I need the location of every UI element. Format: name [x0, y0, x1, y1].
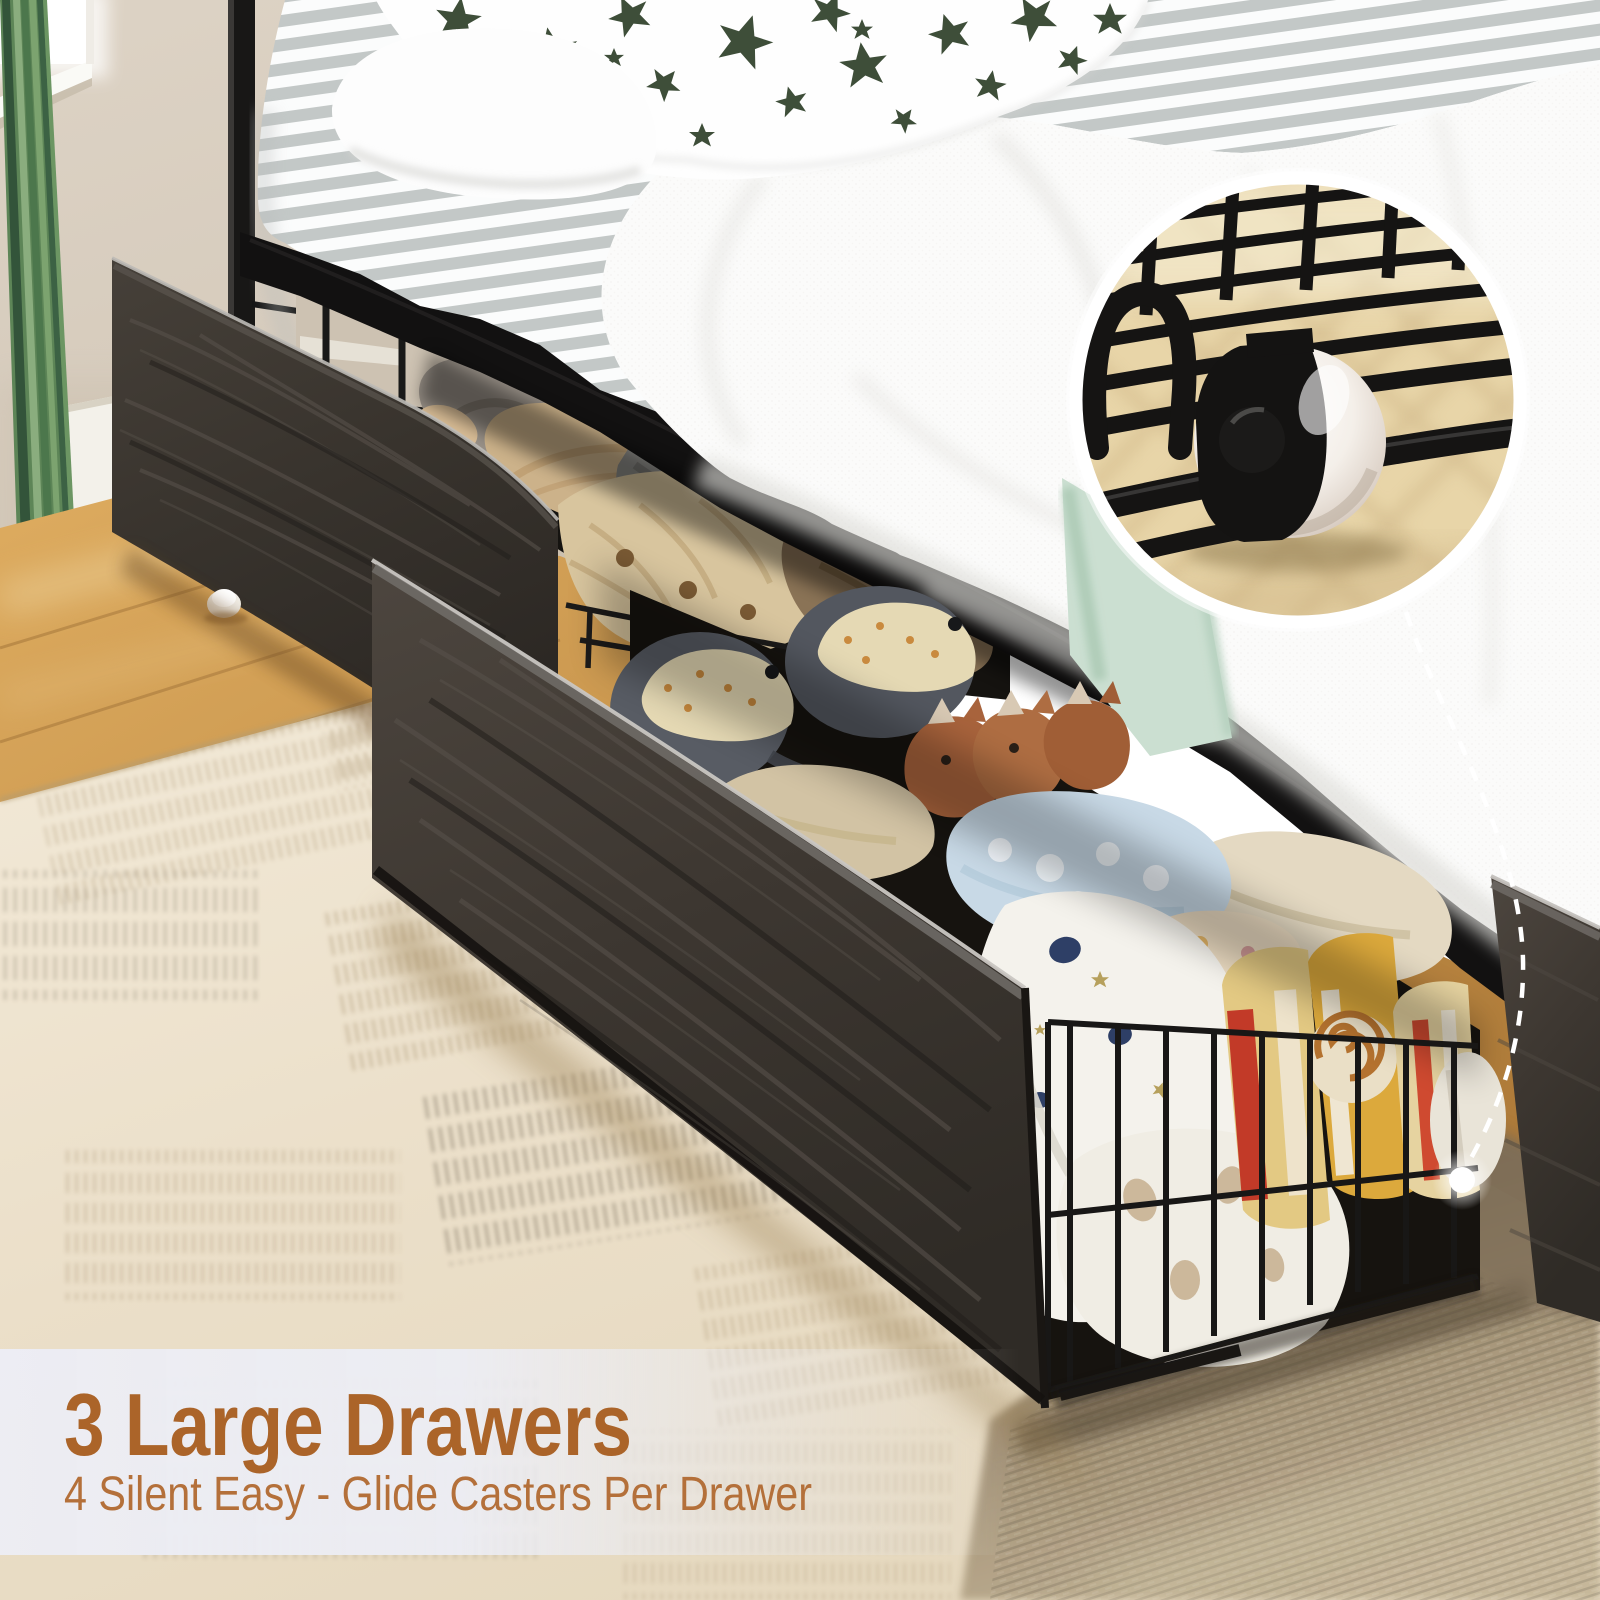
svg-text:3 Large Drawers: 3 Large Drawers: [64, 1375, 632, 1474]
svg-text:4 Silent Easy - Glide Casters: 4 Silent Easy - Glide Casters Per Drawer: [64, 1468, 812, 1521]
